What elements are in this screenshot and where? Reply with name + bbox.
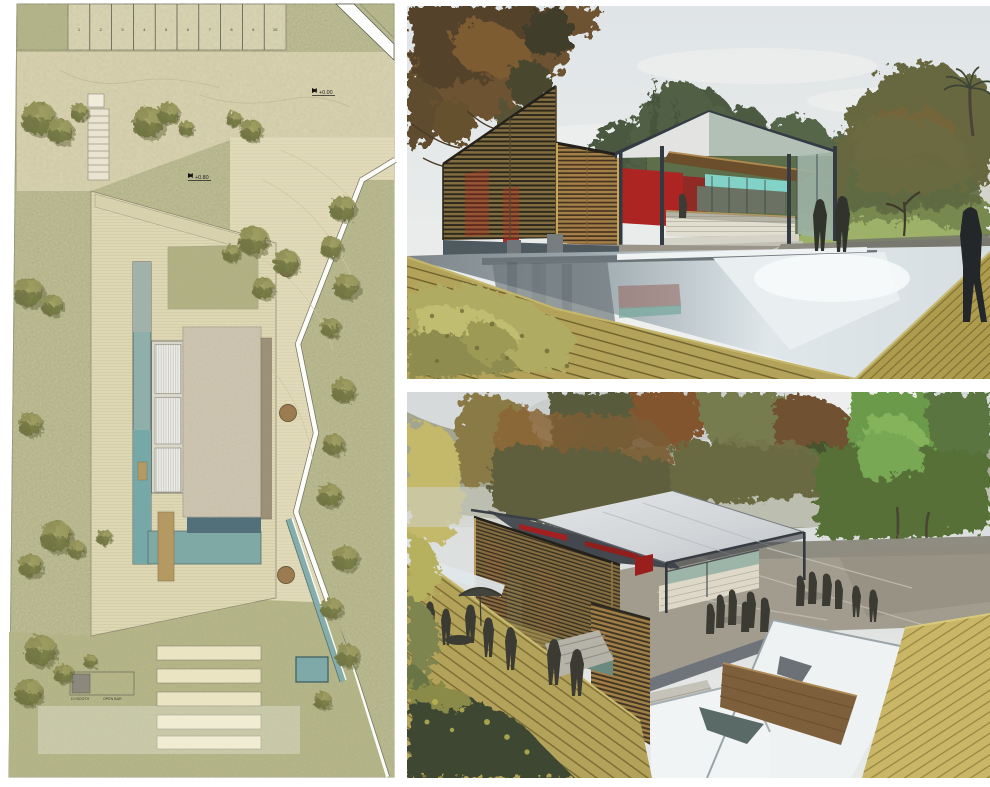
svg-text:+0.00: +0.00 [319, 90, 333, 96]
svg-text:10: 10 [273, 27, 278, 32]
svg-text:+0.80: +0.80 [195, 175, 209, 181]
svg-text:DJ BOOTH: DJ BOOTH [71, 697, 90, 701]
svg-text:OPEN BAR: OPEN BAR [103, 697, 122, 701]
